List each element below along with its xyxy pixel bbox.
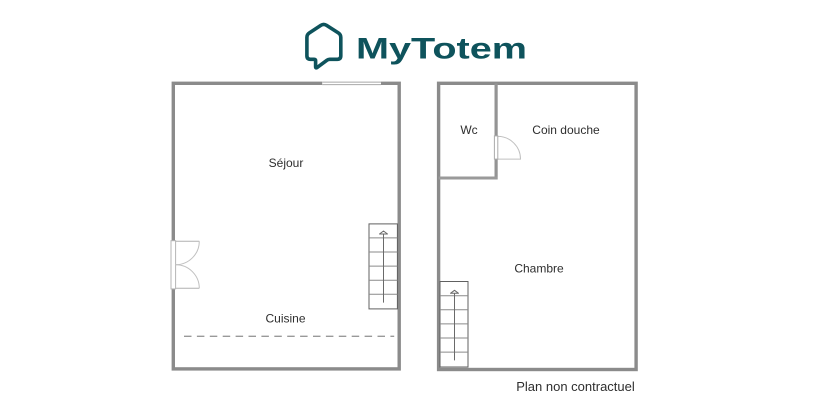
svg-text:Coin douche: Coin douche [532, 123, 600, 137]
svg-text:Plan non contractuel: Plan non contractuel [516, 379, 635, 394]
svg-text:Chambre: Chambre [514, 262, 564, 276]
svg-text:MyTotem: MyTotem [356, 33, 527, 66]
svg-text:Wc: Wc [460, 123, 477, 137]
svg-text:Séjour: Séjour [269, 156, 304, 170]
svg-text:Cuisine: Cuisine [265, 311, 305, 325]
